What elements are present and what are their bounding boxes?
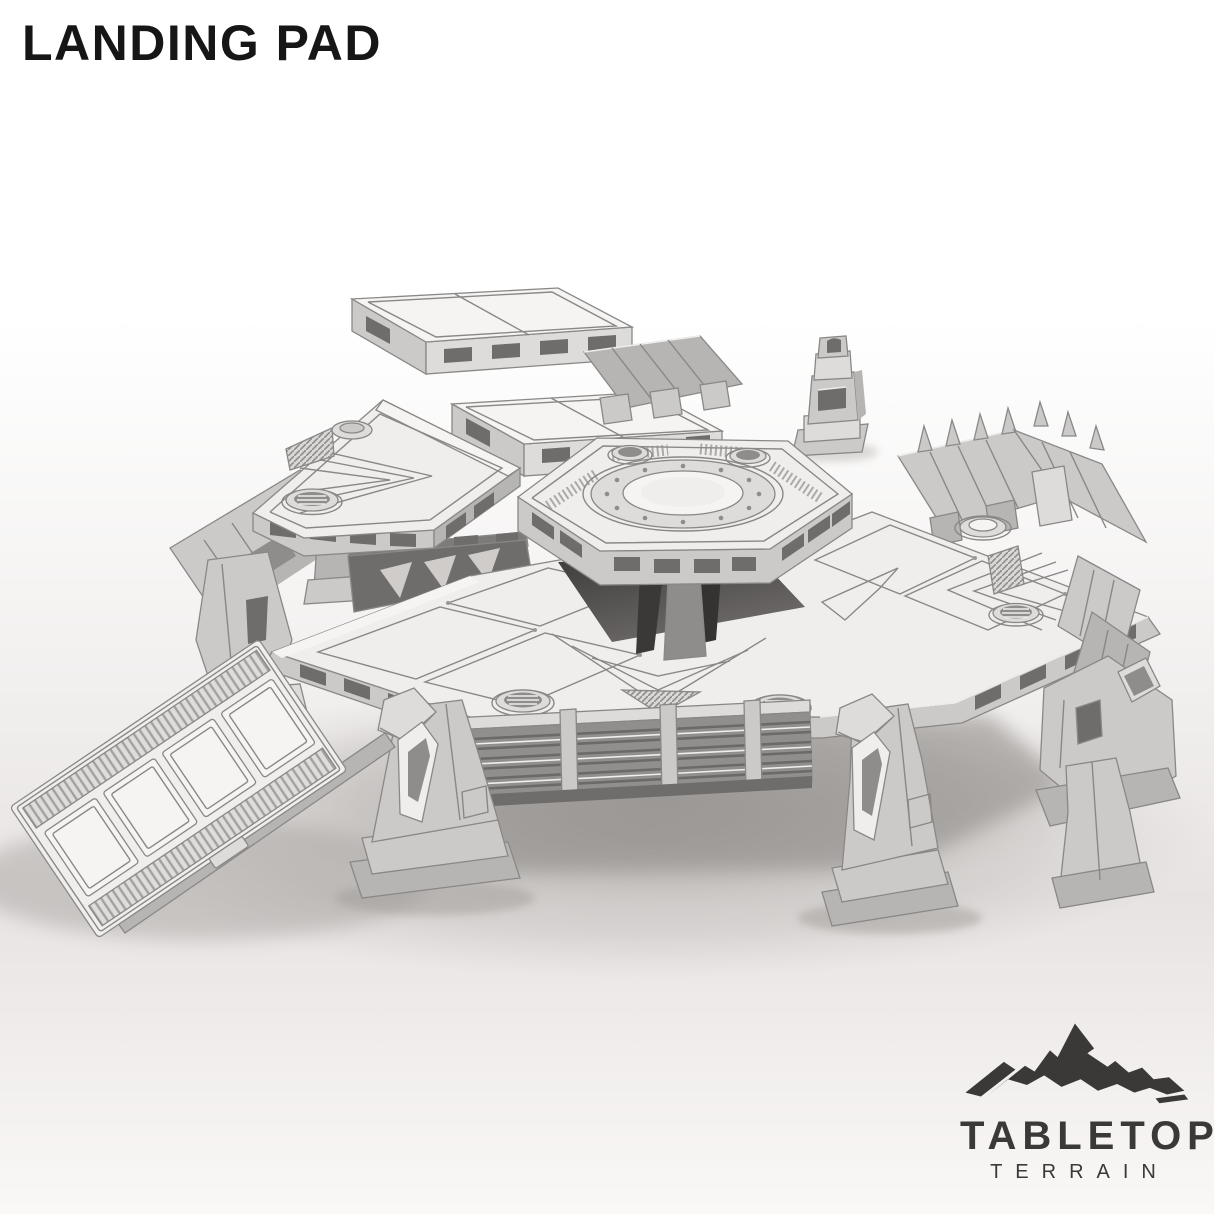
brand-name: TABLETOP [954,1115,1192,1157]
barrier-walls-right [898,402,1146,546]
beacon-tower [792,336,868,456]
product-photo: LANDING PAD [0,0,1214,1214]
brand-logo: TABLETOP TERRAIN [954,1012,1192,1184]
barrier-wall-top [584,336,742,424]
walkway-plank-upper [352,288,632,374]
mountain-icon [954,1012,1192,1108]
brand-subname: TERRAIN [954,1161,1192,1184]
deck-dome-vent [955,516,1011,540]
